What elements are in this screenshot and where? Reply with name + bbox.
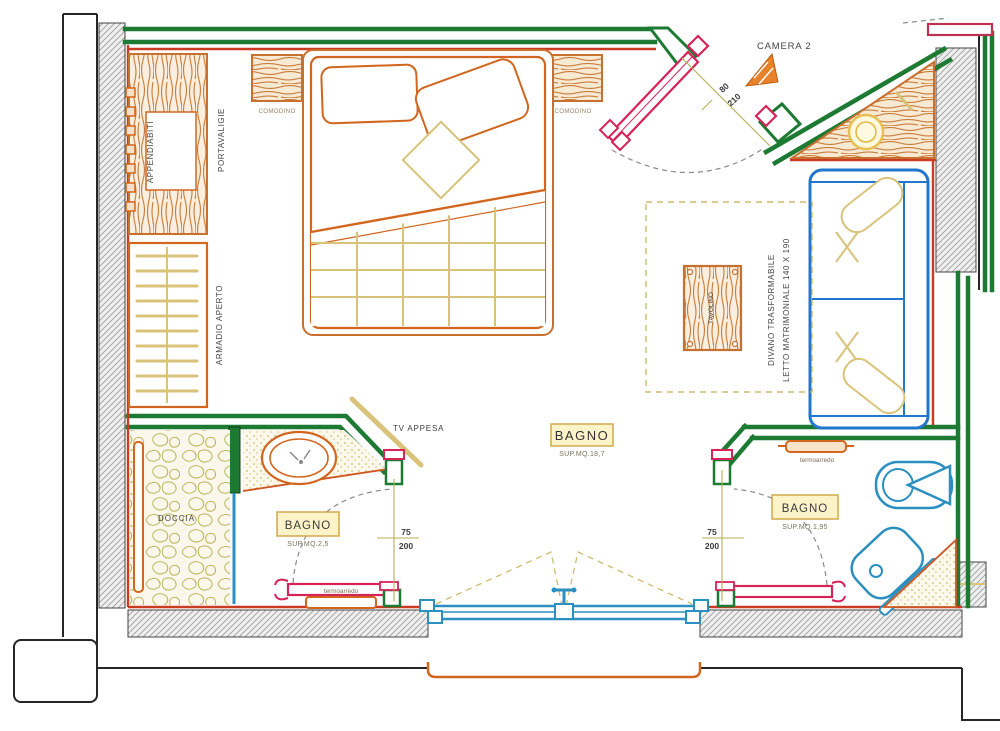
double-bed — [303, 50, 553, 335]
radiator-left — [306, 597, 376, 608]
window — [420, 552, 708, 677]
bath-right-area: SUP.MQ.1,95 — [782, 524, 828, 531]
bathroom-left: DOCCIA 75 200 BAGNO SUP.MQ.2,5 termoarre… — [130, 430, 419, 608]
wall-top-right-cap — [928, 24, 992, 35]
open-wardrobe: ARMADIO APERTO — [129, 243, 224, 407]
wall-top — [125, 29, 655, 42]
nightstand-right: COMODINO — [548, 55, 602, 115]
entrance-width: 80 — [717, 81, 731, 95]
bath-right-label: BAGNO SUP.MQ.1,95 — [772, 495, 838, 531]
floor-plan: APPENDIABITI PORTAVALIGIE ARMADIO APERTO… — [0, 0, 1000, 731]
door-leaf — [732, 586, 832, 597]
door-jamb-cap — [712, 450, 732, 459]
wardrobe-appendiabiti: APPENDIABITI PORTAVALIGIE — [126, 54, 226, 234]
wall-right-column — [936, 48, 976, 272]
tavolino-label: TAVOLINO — [708, 292, 715, 324]
shower-partition-stub — [229, 427, 240, 493]
sofa-label-line1: DIVANO TRASFORMABILE — [767, 254, 776, 366]
radiator-left-label: termoarredo — [324, 588, 359, 595]
corner-vanity-unit — [792, 62, 934, 158]
camera-label: CAMERA 2 — [757, 41, 811, 52]
wall-left — [99, 23, 125, 608]
wall-right-outer — [985, 33, 992, 290]
room-label-main: BAGNO SUP.MQ.18,7 — [551, 424, 613, 458]
sofa-bed — [810, 170, 928, 428]
armadio-label: ARMADIO APERTO — [215, 285, 224, 365]
door-width: 75 — [707, 527, 717, 537]
floor-plan-drawing: APPENDIABITI PORTAVALIGIE ARMADIO APERTO… — [0, 0, 1000, 731]
shower-door-panel — [134, 442, 143, 592]
wall-bottom-left — [128, 610, 428, 637]
door-width: 75 — [401, 527, 411, 537]
door-hinge-block — [384, 590, 400, 606]
doccia-label: DOCCIA — [158, 514, 195, 523]
door-hinge-block — [718, 590, 734, 606]
bath-left-name: BAGNO — [285, 520, 332, 532]
tv-label: TV APPESA — [393, 424, 444, 433]
wall-bottom-right — [700, 610, 962, 637]
nightstand-left-label: COMODINO — [258, 108, 295, 115]
camera-direction-arrow — [746, 54, 778, 86]
window-handle — [552, 588, 577, 620]
corner-sink — [849, 115, 883, 149]
bathroom-right: termoarredo 75 200 — [702, 441, 956, 616]
coffee-table: TAVOLINO — [684, 266, 741, 350]
wall-right-inner — [958, 273, 968, 606]
radiator-right — [786, 441, 846, 452]
entrance-door-swing — [612, 148, 764, 173]
appendiabiti-label: APPENDIABITI — [146, 121, 155, 183]
portavaligie-label: PORTAVALIGIE — [217, 108, 226, 172]
window-sill — [428, 662, 700, 677]
bath-left-label: BAGNO SUP.MQ.2,5 — [277, 512, 339, 548]
entrance-height: 210 — [725, 91, 742, 108]
door-height: 200 — [705, 541, 719, 551]
door-height: 200 — [399, 541, 413, 551]
nightstand-left: COMODINO — [252, 55, 302, 115]
facade-dashed-line — [903, 18, 948, 23]
coat-hooks — [126, 88, 135, 211]
pillow — [321, 64, 418, 123]
facade-pilaster — [14, 640, 97, 702]
radiator-right-label: termoarredo — [800, 457, 835, 464]
bidet — [876, 462, 952, 508]
room-area: SUP.MQ.18,7 — [559, 451, 605, 458]
bath-right-name: BAGNO — [782, 503, 829, 515]
entrance-dim-tick — [702, 100, 712, 110]
door-jamb-cap — [384, 450, 404, 459]
sofa-label-line2: LETTO MATRIMONIALE 140 X 190 — [782, 238, 791, 382]
bath-left-area: SUP.MQ.2,5 — [287, 541, 328, 548]
room-name: BAGNO — [555, 428, 609, 443]
nightstand-right-label: COMODINO — [554, 108, 591, 115]
